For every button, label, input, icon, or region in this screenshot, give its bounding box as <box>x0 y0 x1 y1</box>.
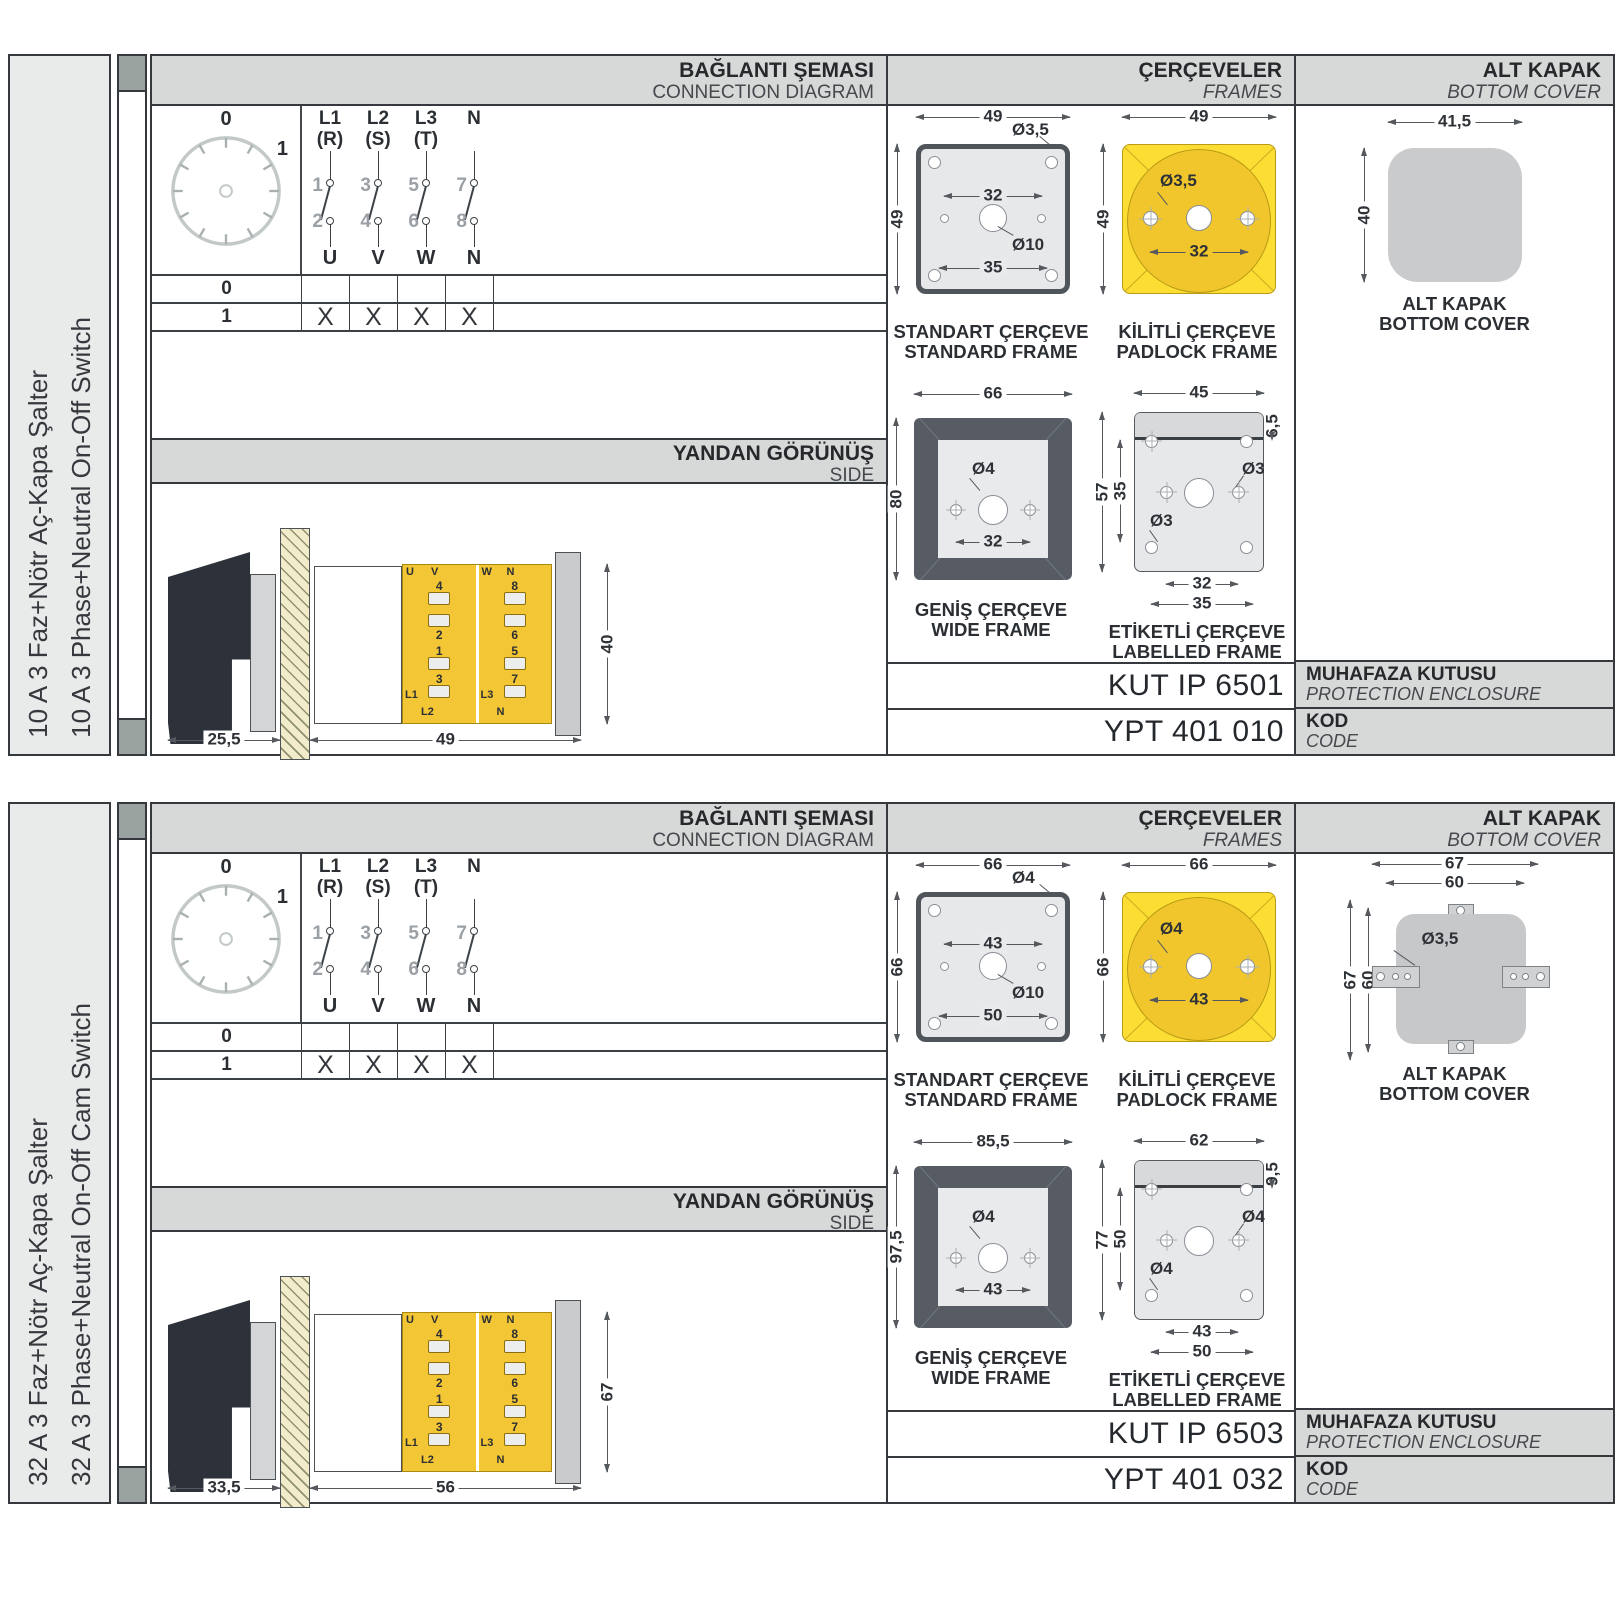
product-title-sidebar: 32 A 3 Faz+Nötr Aç-Kapa Şalter 32 A 3 Ph… <box>8 802 111 1504</box>
contact-column-l3: L3 (T) 5 6 W <box>402 106 450 274</box>
terminal-lug <box>428 1433 450 1446</box>
switching-state-table: 0 1 X X X X <box>152 274 886 332</box>
terminal-number: 2 <box>436 629 443 641</box>
connection-header-english: CONNECTION DIAGRAM <box>152 831 874 851</box>
state-row-label: 0 <box>152 1024 302 1050</box>
terminal-label: L2 <box>421 1455 434 1466</box>
hole-diameter-callout: Ø4 <box>1160 920 1183 937</box>
load-label: N <box>450 247 498 270</box>
terminal-lug <box>428 657 450 670</box>
product-title-turkish: 32 A 3 Faz+Nötr Aç-Kapa Şalter <box>23 1118 54 1486</box>
standard-frame-cell: 66 Ø4 66 43 <box>888 854 1094 1132</box>
cover-header-turkish: ALT KAPAK <box>1296 59 1601 83</box>
terminal-label: L1 <box>405 690 418 701</box>
panel-main: BAĞLANTI ŞEMASI CONNECTION DIAGRAM ÇERÇE… <box>150 802 1615 1504</box>
terminal-label: N <box>497 1455 505 1466</box>
enclosure-label: MUHAFAZA KUTUSU PROTECTION ENCLOSURE <box>1296 1408 1613 1455</box>
spine-strip <box>117 802 147 1504</box>
mounting-panel-hatch <box>280 1276 310 1508</box>
terminal-lug <box>504 685 526 698</box>
side-view-header: YANDAN GÖRÜNÜŞ SIDE <box>152 438 886 484</box>
switch-body: U V 4 2 1 3 L1 L2 <box>402 564 552 724</box>
phase-sublabel <box>450 878 498 899</box>
table-row: 0 <box>152 1024 886 1052</box>
switch-handle <box>168 1300 250 1492</box>
frames-grid: 49 Ø3,5 49 32 <box>888 106 1294 662</box>
connection-diagram-header: BAĞLANTI ŞEMASI CONNECTION DIAGRAM <box>152 804 888 852</box>
spine-cap-top <box>119 56 145 92</box>
hole-diameter-callout: Ø3 <box>1242 460 1265 477</box>
terminal-column-right: W N 8 6 5 7 L3 N <box>479 565 552 723</box>
enclosure-label: MUHAFAZA KUTUSU PROTECTION ENCLOSURE <box>1296 660 1613 707</box>
connection-header-english: CONNECTION DIAGRAM <box>152 83 874 103</box>
contact-schematic: L1 (R) 1 2 U L2 ( <box>302 854 886 1022</box>
contact-symbol: 7 8 <box>450 151 498 247</box>
terminal-label: V <box>431 1315 438 1326</box>
terminal-label: L2 <box>421 707 434 718</box>
labelled-frame-cell: 45 6,5 57 35 Ø3 <box>1094 384 1300 662</box>
bottom-cover-header: ALT KAPAK BOTTOM COVER <box>1296 804 1613 852</box>
frames-grid: 66 Ø4 66 43 <box>888 854 1294 1410</box>
switch-handle <box>168 552 250 744</box>
spine-cap-top <box>119 804 145 840</box>
state-mark-cell: X <box>398 304 446 330</box>
cover-column: 67 67 ALT KAPAK BOTTOM COVER 67 60 67 <box>1296 854 1613 1502</box>
side-view-title-turkish: YANDAN GÖRÜNÜŞ <box>152 1190 874 1214</box>
height-dimension: 40 <box>607 564 608 724</box>
load-label: N <box>450 995 498 1018</box>
terminal-lug <box>504 1362 526 1375</box>
terminal-number-out: 2 <box>312 211 323 233</box>
side-view-drawing: U V 4 2 1 3 L1 L2 <box>152 484 886 754</box>
contact-column-n: N 7 8 N <box>450 854 498 1022</box>
terminal-label: U <box>406 1315 414 1326</box>
terminal-label: N <box>507 567 515 578</box>
cover-label: ALT KAPAK BOTTOM COVER <box>1330 294 1580 334</box>
state-mark-cell <box>398 276 446 302</box>
state-mark-cell <box>446 1024 494 1050</box>
terminal-lug <box>428 1340 450 1353</box>
state-mark-cell <box>446 276 494 302</box>
cover-shape <box>1388 148 1522 282</box>
terminal-number: 5 <box>511 1393 518 1405</box>
labelled-frame-drawing: 45 6,5 57 35 Ø3 <box>1094 386 1300 622</box>
switching-state-table: 0 1 X X X X <box>152 1022 886 1080</box>
phase-label: L2 <box>354 857 402 878</box>
product-title-turkish: 10 A 3 Faz+Nötr Aç-Kapa Şalter <box>23 370 54 738</box>
frames-header: ÇERÇEVELER FRAMES <box>888 804 1296 852</box>
connection-column: 0 1 <box>152 106 888 754</box>
terminal-number: 7 <box>511 673 518 685</box>
terminal-number: 8 <box>511 1328 518 1340</box>
terminal-number: 3 <box>436 1421 443 1433</box>
frames-header-turkish: ÇERÇEVELER <box>888 807 1282 831</box>
cover-header-english: BOTTOM COVER <box>1296 83 1601 103</box>
terminal-number-out: 4 <box>360 959 371 981</box>
switch-housing <box>314 566 402 724</box>
width-dimension: 56 <box>310 1488 581 1489</box>
table-row: 1 X X X X <box>152 1052 886 1080</box>
wide-frame-cell: 85,5 97,5 Ø4 4 <box>888 1132 1094 1410</box>
state-mark-cell: X <box>446 1052 494 1078</box>
terminal-number-in: 5 <box>408 923 419 945</box>
phase-sublabel: (S) <box>354 130 402 151</box>
wide-frame-label: GENİŞ ÇERÇEVE WIDE FRAME <box>915 1348 1067 1388</box>
phase-sublabel: (T) <box>402 130 450 151</box>
phase-sublabel: (R) <box>306 878 354 899</box>
padlock-frame-cell: 49 49 Ø3,5 32 <box>1094 106 1300 384</box>
terminal-number-in: 1 <box>312 175 323 197</box>
state-mark-cell: X <box>398 1052 446 1078</box>
product-code: YPT 401 010 <box>888 708 1294 754</box>
terminal-number: 2 <box>436 1377 443 1389</box>
frames-header-english: FRAMES <box>888 831 1282 851</box>
terminal-number-in: 7 <box>456 175 467 197</box>
labelled-frame-label: ETİKETLİ ÇERÇEVE LABELLED FRAME <box>1109 622 1286 662</box>
terminal-number-in: 5 <box>408 175 419 197</box>
state-row-label: 0 <box>152 276 302 302</box>
product-panel: 10 A 3 Faz+Nötr Aç-Kapa Şalter 10 A 3 Ph… <box>8 54 1615 756</box>
terminal-label: L3 <box>481 690 494 701</box>
terminal-column-right: W N 8 6 5 7 L3 N <box>479 1313 552 1471</box>
handle-base-plate <box>250 1322 276 1480</box>
product-title-sidebar: 10 A 3 Faz+Nötr Aç-Kapa Şalter 10 A 3 Ph… <box>8 54 111 756</box>
hole-diameter-callout: Ø4 <box>1150 1260 1173 1277</box>
table-row: 0 <box>152 276 886 304</box>
contact-symbol: 5 6 <box>402 899 450 995</box>
terminal-number-out: 8 <box>456 211 467 233</box>
phase-sublabel: (R) <box>306 130 354 151</box>
padlock-frame-drawing: 49 49 Ø3,5 32 <box>1094 108 1300 322</box>
spine-strip <box>117 54 147 756</box>
contact-symbol: 7 8 <box>450 899 498 995</box>
connection-header-turkish: BAĞLANTI ŞEMASI <box>152 59 874 83</box>
terminal-lug <box>428 592 450 605</box>
state-mark-cell: X <box>350 1052 398 1078</box>
dial-icon <box>167 880 285 998</box>
cover-drawing-area: 41,5 40 ALT KAPAK BOTTOM COVER 41,5 40 <box>1296 106 1613 660</box>
side-view-title-english: SIDE <box>152 1214 874 1234</box>
padlock-frame-cell: 66 66 Ø4 43 <box>1094 854 1300 1132</box>
height-dimension: 67 <box>607 1312 608 1472</box>
terminal-number: 7 <box>511 1421 518 1433</box>
state-mark-cell: X <box>302 1052 350 1078</box>
section-header-row: BAĞLANTI ŞEMASI CONNECTION DIAGRAM ÇERÇE… <box>152 56 1613 106</box>
terminal-lug <box>428 685 450 698</box>
product-title-english: 10 A 3 Phase+Neutral On-Off Switch <box>66 317 97 738</box>
spine-cap-bottom <box>119 718 145 754</box>
handle-base-plate <box>250 574 276 732</box>
wide-frame-drawing: 66 80 Ø4 32 <box>888 386 1094 600</box>
terminal-number-out: 8 <box>456 959 467 981</box>
cover-label: ALT KAPAK BOTTOM COVER <box>1330 1064 1580 1104</box>
terminal-number: 5 <box>511 645 518 657</box>
state-mark-cell <box>302 276 350 302</box>
phase-label: N <box>450 109 498 130</box>
side-view-title-turkish: YANDAN GÖRÜNÜŞ <box>152 442 874 466</box>
enclosure-code: KUT IP 6503 <box>888 1410 1294 1456</box>
bottom-cover-drawing: 41,5 40 ALT KAPAK BOTTOM COVER <box>1330 110 1580 350</box>
phase-label: N <box>450 857 498 878</box>
wide-frame-cell: 66 80 Ø4 32 <box>888 384 1094 662</box>
standard-frame-drawing: 49 Ø3,5 49 32 <box>888 108 1094 322</box>
frames-column: 66 Ø4 66 43 <box>888 854 1296 1502</box>
terminal-lug <box>504 657 526 670</box>
section-header-row: BAĞLANTI ŞEMASI CONNECTION DIAGRAM ÇERÇE… <box>152 804 1613 854</box>
side-view-drawing: U V 4 2 1 3 L1 L2 <box>152 1232 886 1502</box>
terminal-lug <box>504 1405 526 1418</box>
standard-frame-label: STANDART ÇERÇEVE STANDARD FRAME <box>894 322 1089 362</box>
hole-diameter-callout: Ø4 <box>972 460 995 477</box>
mounting-panel-hatch <box>280 528 310 760</box>
terminal-number-in: 1 <box>312 923 323 945</box>
state-mark-cell: X <box>350 304 398 330</box>
switch-body: U V 4 2 1 3 L1 L2 <box>402 1312 552 1472</box>
code-label: KOD CODE <box>1296 707 1613 754</box>
rear-plate <box>555 1300 581 1484</box>
enclosure-code: KUT IP 6501 <box>888 662 1294 708</box>
terminal-number: 3 <box>436 673 443 685</box>
hole-diameter-callout: Ø4 <box>972 1208 995 1225</box>
dial-position-0: 0 <box>220 856 231 879</box>
bottom-cover-drawing: 67 60 67 60 Ø3,5 <box>1330 858 1580 1118</box>
terminal-number-in: 3 <box>360 923 371 945</box>
hole-diameter-callout: Ø4 <box>1012 869 1035 886</box>
width-dimension: 49 <box>310 740 581 741</box>
terminal-label: U <box>406 567 414 578</box>
switch-position-dial: 0 1 <box>152 854 302 1022</box>
load-label: V <box>354 995 402 1018</box>
wide-frame-drawing: 85,5 97,5 Ø4 4 <box>888 1134 1094 1348</box>
state-mark-cell <box>398 1024 446 1050</box>
panel-content: 0 1 <box>152 854 1613 1502</box>
standard-frame-label: STANDART ÇERÇEVE STANDARD FRAME <box>894 1070 1089 1110</box>
phase-label: L3 <box>402 109 450 130</box>
terminal-number-out: 6 <box>408 959 419 981</box>
cover-header-english: BOTTOM COVER <box>1296 831 1601 851</box>
load-label: W <box>402 995 450 1018</box>
state-row-label: 1 <box>152 304 302 330</box>
padlock-frame-label: KİLİTLİ ÇERÇEVE PADLOCK FRAME <box>1116 1070 1277 1110</box>
terminal-number-in: 3 <box>360 175 371 197</box>
contact-column-l1: L1 (R) 1 2 U <box>306 854 354 1022</box>
contact-symbol: 1 2 <box>306 899 354 995</box>
labelled-frame-label: ETİKETLİ ÇERÇEVE LABELLED FRAME <box>1109 1370 1286 1410</box>
frames-column: 49 Ø3,5 49 32 <box>888 106 1296 754</box>
connection-column: 0 1 <box>152 854 888 1502</box>
padlock-frame-label: KİLİTLİ ÇERÇEVE PADLOCK FRAME <box>1116 322 1277 362</box>
terminal-number-out: 4 <box>360 211 371 233</box>
phase-sublabel <box>450 130 498 151</box>
terminal-label: W <box>482 567 492 578</box>
spine-cap-bottom <box>119 1466 145 1502</box>
frames-header-english: FRAMES <box>888 83 1282 103</box>
terminal-number: 8 <box>511 580 518 592</box>
product-panel: 32 A 3 Faz+Nötr Aç-Kapa Şalter 32 A 3 Ph… <box>8 802 1615 1504</box>
cover-drawing-area: 67 67 ALT KAPAK BOTTOM COVER 67 60 67 <box>1296 854 1613 1408</box>
bottom-cover-header: ALT KAPAK BOTTOM COVER <box>1296 56 1613 104</box>
terminal-number: 6 <box>511 629 518 641</box>
load-label: U <box>306 995 354 1018</box>
terminal-number: 6 <box>511 1377 518 1389</box>
table-row: 1 X X X X <box>152 304 886 332</box>
hole-diameter-callout: Ø3,5 <box>1160 172 1197 189</box>
contact-column-l1: L1 (R) 1 2 U <box>306 106 354 274</box>
contact-schematic: L1 (R) 1 2 U L2 ( <box>302 106 886 274</box>
phase-label: L1 <box>306 109 354 130</box>
standard-frame-cell: 49 Ø3,5 49 32 <box>888 106 1094 384</box>
terminal-lug <box>428 1362 450 1375</box>
terminal-number: 4 <box>436 580 443 592</box>
dial-icon <box>167 132 285 250</box>
depth-dimension: 25,5 <box>168 740 280 741</box>
phase-label: L1 <box>306 857 354 878</box>
wide-frame-label: GENİŞ ÇERÇEVE WIDE FRAME <box>915 600 1067 640</box>
phase-label: L2 <box>354 109 402 130</box>
phase-sublabel: (T) <box>402 878 450 899</box>
terminal-lug <box>428 614 450 627</box>
frames-header-turkish: ÇERÇEVELER <box>888 59 1282 83</box>
hole-diameter-callout: Ø4 <box>1242 1208 1265 1225</box>
hole-diameter-callout: Ø3 <box>1150 512 1173 529</box>
contact-column-n: N 7 8 N <box>450 106 498 274</box>
load-label: U <box>306 247 354 270</box>
terminal-number: 1 <box>436 645 443 657</box>
connection-diagram: 0 1 <box>152 854 886 1022</box>
terminal-number-out: 2 <box>312 959 323 981</box>
terminal-number: 1 <box>436 1393 443 1405</box>
phase-sublabel: (S) <box>354 878 402 899</box>
rear-plate <box>555 552 581 736</box>
contact-symbol: 3 4 <box>354 899 402 995</box>
center-hole-callout: Ø10 <box>1012 236 1044 253</box>
load-label: W <box>402 247 450 270</box>
connection-diagram-header: BAĞLANTI ŞEMASI CONNECTION DIAGRAM <box>152 56 888 104</box>
state-mark-cell <box>350 276 398 302</box>
standard-frame-drawing: 66 Ø4 66 43 <box>888 856 1094 1070</box>
dial-position-0: 0 <box>220 108 231 131</box>
side-view-title-english: SIDE <box>152 466 874 486</box>
code-label: KOD CODE <box>1296 1455 1613 1502</box>
labelled-frame-drawing: 62 9,5 77 50 Ø4 <box>1094 1134 1300 1370</box>
terminal-lug <box>504 1340 526 1353</box>
terminal-label: V <box>431 567 438 578</box>
terminal-label: N <box>497 707 505 718</box>
terminal-column-left: U V 4 2 1 3 L1 L2 <box>403 1313 476 1471</box>
depth-dimension: 33,5 <box>168 1488 280 1489</box>
panel-content: 0 1 <box>152 106 1613 754</box>
cover-column: 41,5 40 ALT KAPAK BOTTOM COVER 41,5 40 <box>1296 106 1613 754</box>
state-mark-cell: X <box>302 304 350 330</box>
terminal-number: 4 <box>436 1328 443 1340</box>
contact-symbol: 3 4 <box>354 151 402 247</box>
terminal-lug <box>504 1433 526 1446</box>
hole-diameter-callout: Ø3,5 <box>1422 930 1459 947</box>
load-label: V <box>354 247 402 270</box>
terminal-column-left: U V 4 2 1 3 L1 L2 <box>403 565 476 723</box>
contact-column-l3: L3 (T) 5 6 W <box>402 854 450 1022</box>
phase-label: L3 <box>402 857 450 878</box>
catalog-page: 10 A 3 Faz+Nötr Aç-Kapa Şalter 10 A 3 Ph… <box>0 0 1623 1623</box>
terminal-number-out: 6 <box>408 211 419 233</box>
connection-diagram: 0 1 <box>152 106 886 274</box>
terminal-label: N <box>507 1315 515 1326</box>
padlock-frame-drawing: 66 66 Ø4 43 <box>1094 856 1300 1070</box>
terminal-label: W <box>482 1315 492 1326</box>
state-mark-cell <box>350 1024 398 1050</box>
contact-column-l2: L2 (S) 3 4 V <box>354 854 402 1022</box>
center-hole-callout: Ø10 <box>1012 984 1044 1001</box>
connection-header-turkish: BAĞLANTI ŞEMASI <box>152 807 874 831</box>
terminal-number-in: 7 <box>456 923 467 945</box>
terminal-lug <box>504 614 526 627</box>
switch-position-dial: 0 1 <box>152 106 302 274</box>
terminal-lug <box>504 592 526 605</box>
state-mark-cell <box>302 1024 350 1050</box>
frames-header: ÇERÇEVELER FRAMES <box>888 56 1296 104</box>
side-view-header: YANDAN GÖRÜNÜŞ SIDE <box>152 1186 886 1232</box>
panel-main: BAĞLANTI ŞEMASI CONNECTION DIAGRAM ÇERÇE… <box>150 54 1615 756</box>
switch-housing <box>314 1314 402 1472</box>
cover-header-turkish: ALT KAPAK <box>1296 807 1601 831</box>
terminal-label: L3 <box>481 1438 494 1449</box>
terminal-lug <box>428 1405 450 1418</box>
state-mark-cell: X <box>446 304 494 330</box>
state-row-label: 1 <box>152 1052 302 1078</box>
contact-column-l2: L2 (S) 3 4 V <box>354 106 402 274</box>
contact-symbol: 5 6 <box>402 151 450 247</box>
contact-symbol: 1 2 <box>306 151 354 247</box>
product-code: YPT 401 032 <box>888 1456 1294 1502</box>
product-title-english: 32 A 3 Phase+Neutral On-Off Cam Switch <box>66 1003 97 1486</box>
labelled-frame-cell: 62 9,5 77 50 Ø4 <box>1094 1132 1300 1410</box>
hole-diameter-callout: Ø3,5 <box>1012 121 1049 138</box>
terminal-label: L1 <box>405 1438 418 1449</box>
